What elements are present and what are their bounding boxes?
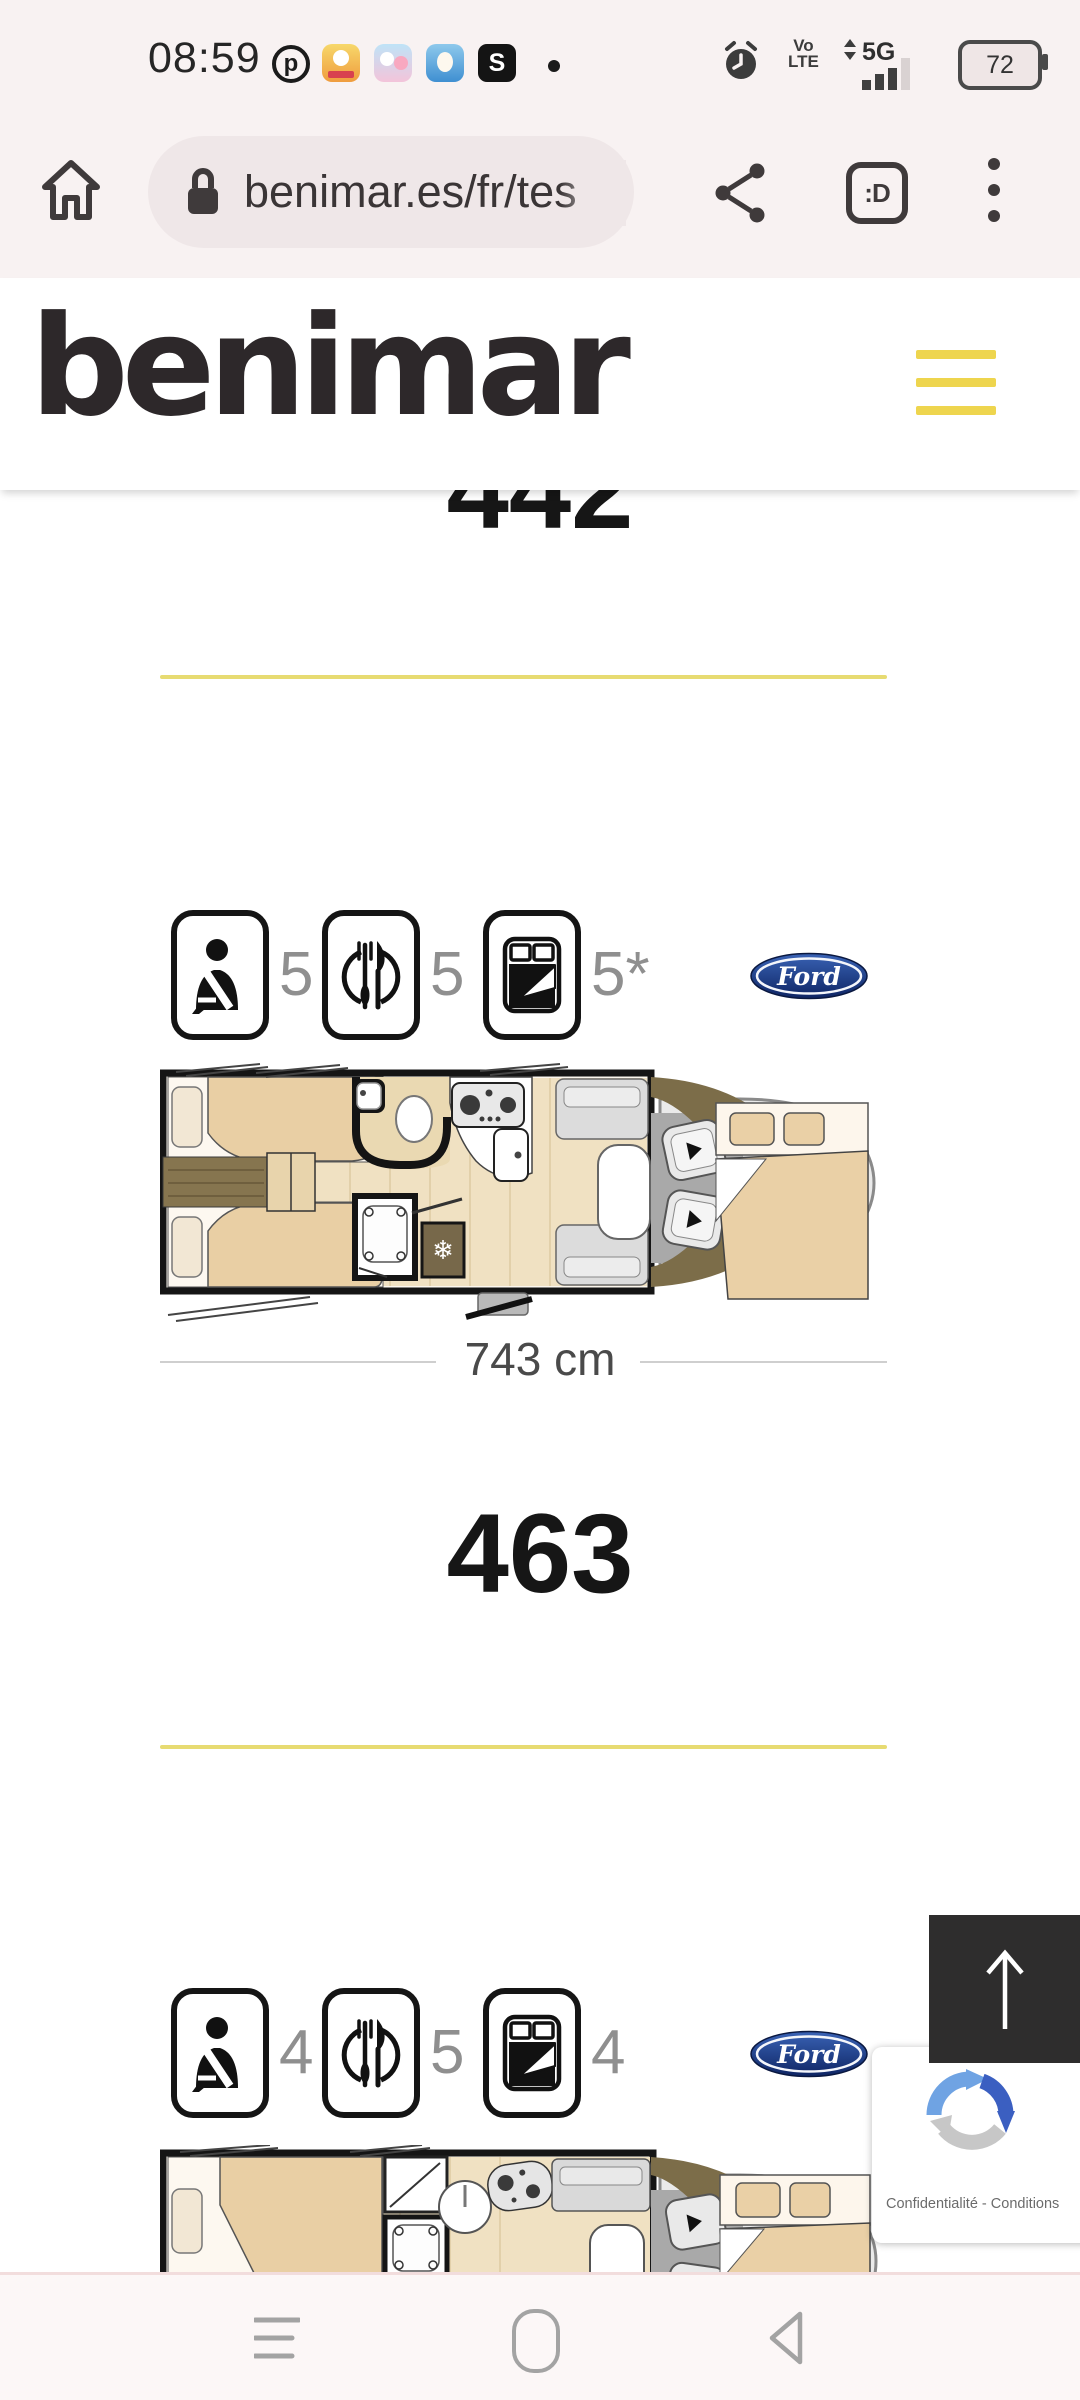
floorplan-463-container [160,2145,887,2272]
battery-indicator: 72 [958,40,1042,90]
recents-menu-button[interactable] [254,2315,300,2365]
egg-game-notification-icon [426,44,464,82]
ford-logo: Ford [748,952,870,1000]
ford-logo: Ford [748,2030,870,2078]
lock-icon [186,166,220,216]
beds-icon-box [483,1988,581,2118]
sleeping-places-count: 5* [591,910,691,1040]
s-app-notification-icon: S [478,44,516,82]
benimar-logo[interactable]: benimar [30,298,624,436]
browser-chrome: 08:59 p S Vo LTE 5G [0,0,1080,278]
share-button[interactable] [712,160,768,226]
volte-bottom: LTE [788,54,819,70]
length-label: 743 cm [390,1332,690,1386]
dining-seats-icon-box [322,910,420,1040]
phone-screen: 442 5 5 5* [0,0,1080,2400]
site-header: benimar [0,278,1080,490]
seatbelt-icon [190,936,250,1014]
android-navigation-bar [0,2272,1080,2400]
candy-game-notification-icon [374,44,412,82]
ford-logo-text: Ford [776,2040,841,2069]
recaptcha-logo [922,2067,1018,2163]
battery-nub [1042,54,1048,70]
pinterest-glyph: p [284,50,299,78]
scroll-to-top-button[interactable] [929,1915,1080,2063]
cutlery-icon [339,2013,403,2093]
seatbelt-icon [190,2014,250,2092]
bed-icon [502,2014,562,2092]
battery-percent: 72 [986,51,1014,80]
alarm-clock-icon [720,40,762,82]
sleeping-places-count: 4 [591,1988,691,2118]
svg-text:❄: ❄ [432,1235,454,1265]
network-type-label: 5G [862,38,895,66]
cutlery-icon [339,935,403,1015]
bingo-app-notification-icon [322,44,360,82]
yellow-divider [160,1745,887,1749]
status-time: 08:59 [148,34,261,83]
url-text[interactable]: benimar.es/fr/tes [244,166,600,220]
volte-indicator: Vo LTE [788,38,819,70]
browser-menu-button[interactable] [988,158,1000,236]
belted-seats-icon-box [171,910,269,1040]
recaptcha-privacy-terms-link[interactable]: Confidentialité - Conditions [886,2196,1080,2212]
tab-count-label: :D [864,178,889,209]
home-nav-button[interactable] [512,2309,560,2373]
model-title-463: 463 [0,1498,1080,1610]
more-notifications-dot [548,60,560,72]
hamburger-menu-button[interactable] [916,350,996,434]
ford-logo-text: Ford [776,962,841,991]
tab-switcher-button[interactable]: :D [846,162,908,224]
floorplan-442-image: ❄ [160,1063,887,1323]
belted-seats-icon-box [171,1988,269,2118]
s-glyph: S [489,49,506,78]
yellow-divider [160,675,887,679]
floorplan-463-image [160,2145,887,2272]
pinterest-notification-icon: p [272,45,310,83]
home-button[interactable] [40,158,102,222]
url-text-fade [560,160,626,226]
bed-icon [502,936,562,1014]
signal-5g-icon: 5G [836,36,948,92]
back-nav-button[interactable] [764,2309,806,2367]
dining-seats-icon-box [322,1988,420,2118]
up-arrow-icon [975,1941,1035,2037]
beds-icon-box [483,910,581,1040]
